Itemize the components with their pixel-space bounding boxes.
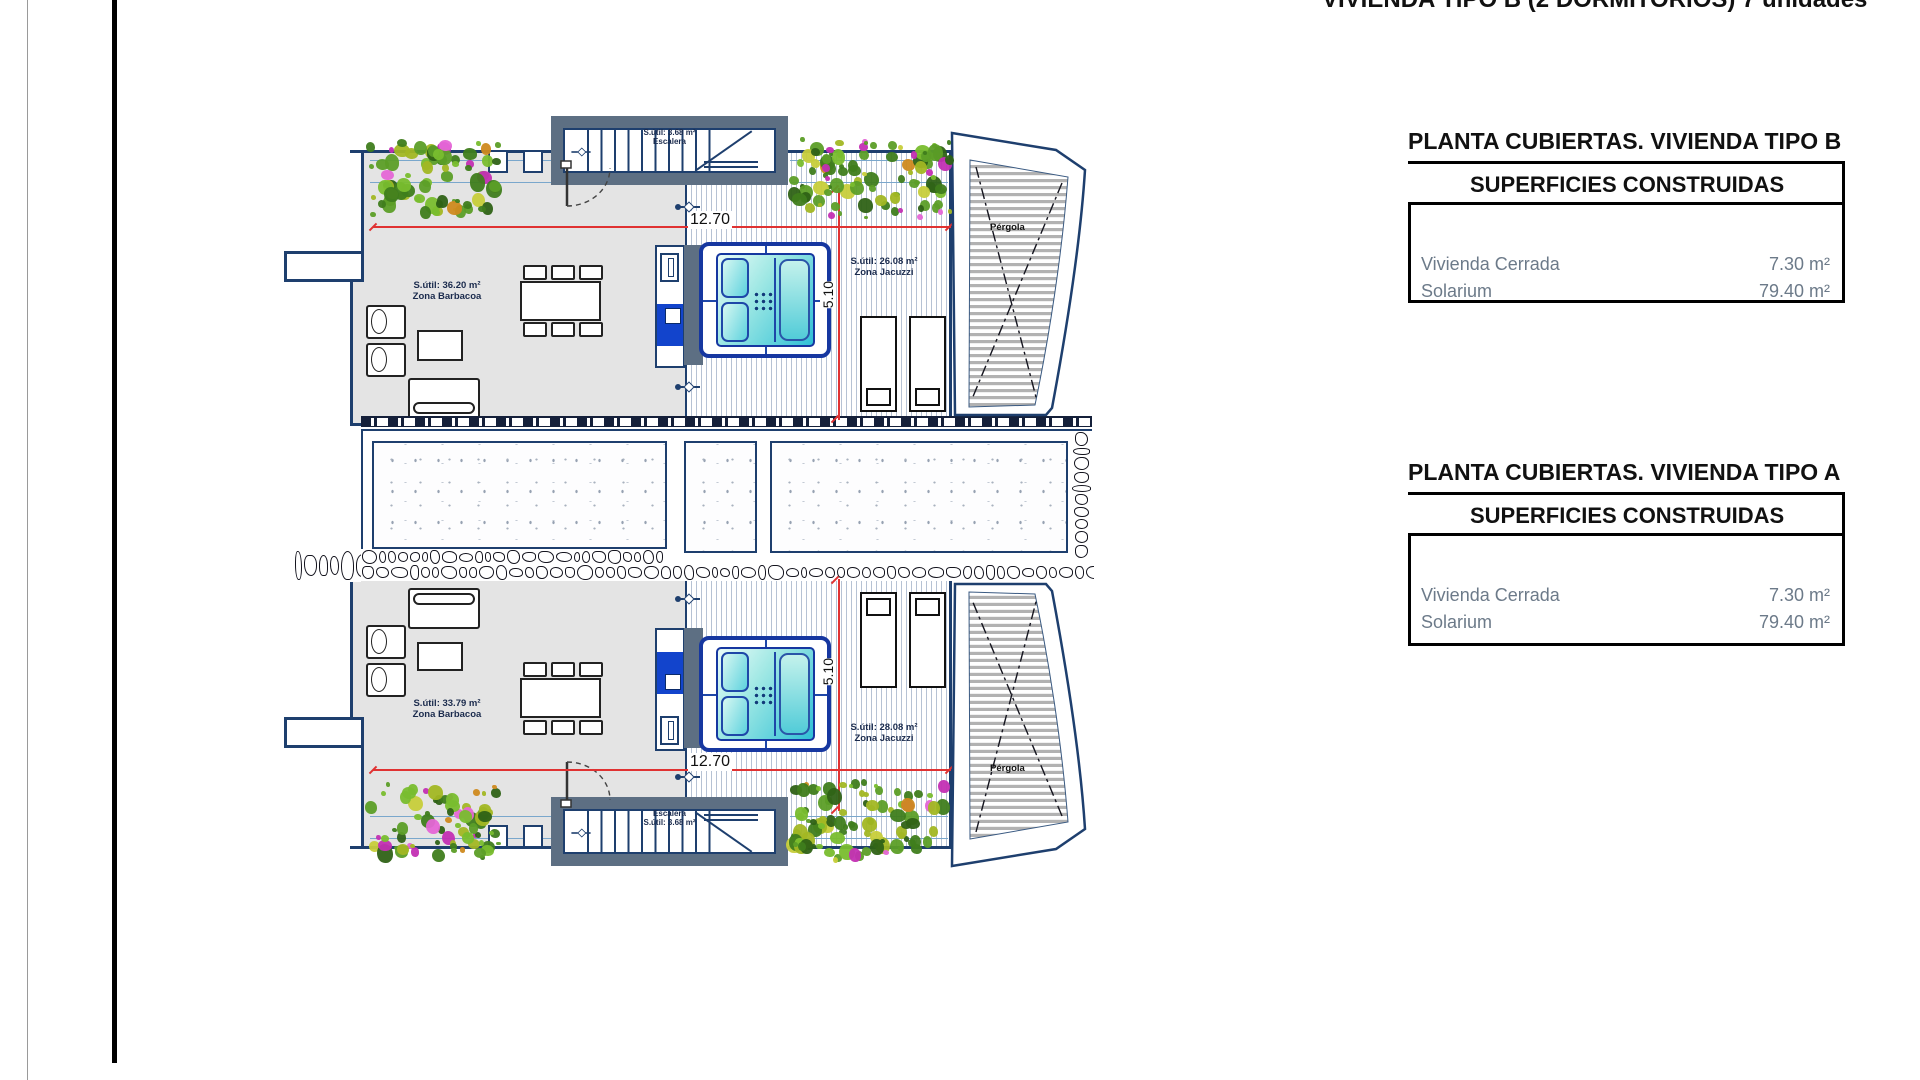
dining-table <box>520 281 601 321</box>
dining-chair <box>551 265 575 280</box>
jacuzzi-bench <box>779 653 810 735</box>
sofa-seat <box>413 593 475 605</box>
row-label: Vivienda Cerrada <box>1421 582 1560 609</box>
dining-chair <box>523 265 547 280</box>
surface-panel-tipo-a: PLANTA CUBIERTAS. VIVIENDA TIPO A SUPERF… <box>1408 459 1845 646</box>
surface-table: Vivienda Cerrada 7.30 m² Solarium 79.40 … <box>1408 536 1842 646</box>
unit-b-left-wall-lower <box>350 279 353 426</box>
jacuzzi <box>699 636 831 752</box>
unit-a-planter-line <box>790 838 948 839</box>
dining-chair <box>523 322 547 337</box>
unit-a-left-wall-lower <box>361 748 364 849</box>
row-value: 7.30 m² <box>1769 582 1830 609</box>
panel-header: SUPERFICIES CONSTRUIDAS <box>1408 164 1842 205</box>
blue-cabinet <box>657 304 683 346</box>
dining-table <box>520 678 601 718</box>
armchair <box>366 305 406 339</box>
concrete-panel <box>684 441 757 553</box>
zone-label: S.útil: 36.20 m² Zona Barbacoa <box>392 280 502 302</box>
row-value: 79.40 m² <box>1759 609 1830 636</box>
jacuzzi <box>699 242 831 358</box>
dimension-line-width <box>373 226 951 228</box>
row-value: 79.40 m² <box>1759 278 1830 305</box>
zone-label: S.útil: 28.08 m² Zona Jacuzzi <box>829 722 939 744</box>
zone-label: S.útil: 26.08 m² Zona Jacuzzi <box>829 256 939 278</box>
armchair <box>366 625 406 659</box>
sheet-frame-line <box>112 0 117 1063</box>
dining-chair <box>579 322 603 337</box>
dimension-line-height <box>838 188 840 420</box>
panel-title: PLANTA CUBIERTAS. VIVIENDA TIPO B <box>1408 128 1845 164</box>
pergola-bottom <box>938 580 1106 872</box>
surface-panel-tipo-b: PLANTA CUBIERTAS. VIVIENDA TIPO B SUPERF… <box>1408 128 1845 303</box>
stair-label: S.útil: 3.68 m² Escalera <box>551 128 788 146</box>
unit-a-wall-notch <box>284 717 364 748</box>
unit-b-wall-notch <box>284 251 364 282</box>
jacuzzi-jets-icon <box>753 291 773 311</box>
dining-chair <box>523 720 547 735</box>
dimension-marker-icon <box>676 770 700 784</box>
dimension-line-width <box>373 769 951 771</box>
stair-direction-icon <box>571 827 590 838</box>
surface-table: Vivienda Cerrada 7.30 m² Solarium 79.40 … <box>1408 205 1842 303</box>
unit-b-planter-line <box>790 160 948 161</box>
armchair <box>366 663 406 697</box>
pergola-top <box>938 123 1106 423</box>
armchair <box>366 343 406 377</box>
coffee-table <box>417 330 463 361</box>
coffee-table <box>417 642 463 671</box>
wall-pier <box>523 150 543 173</box>
sofa <box>408 588 480 629</box>
concrete-panel <box>372 441 667 549</box>
jacuzzi-jets-icon <box>753 685 773 705</box>
zone-label: S.útil: 33.79 m² Zona Barbacoa <box>392 698 502 720</box>
jacuzzi-seat <box>721 696 749 736</box>
sheet-title: VIVIENDA TIPO B (2 DORMITORIOS) 7 unidad… <box>1322 0 1867 14</box>
pergola-label: Pérgola <box>990 222 1025 233</box>
door-swing <box>552 756 616 820</box>
table-row: Solarium 79.40 m² <box>1421 278 1830 305</box>
table-row: Vivienda Cerrada 7.30 m² <box>1421 582 1830 609</box>
dining-chair <box>579 662 603 677</box>
unit-b-planter-line <box>790 182 948 183</box>
sink <box>660 253 679 282</box>
dining-chair <box>551 322 575 337</box>
door-swing <box>552 148 616 212</box>
kitchen-counter <box>655 628 685 751</box>
stone-wall <box>294 549 361 582</box>
dining-chair <box>551 720 575 735</box>
stone-band <box>361 549 667 565</box>
kitchen-counter <box>655 245 685 368</box>
pergola-label: Pérgola <box>990 763 1025 774</box>
dimension-marker-icon <box>676 200 700 214</box>
table-row: Vivienda Cerrada 7.30 m² <box>1421 251 1830 278</box>
concrete-panel <box>770 441 1068 553</box>
dimension-line-height <box>838 579 840 811</box>
stone-band <box>361 564 1094 581</box>
sheet-margin-line <box>27 0 28 1080</box>
unit-a-planter-line <box>790 816 948 817</box>
jacuzzi-water <box>716 253 815 347</box>
sofa-seat <box>413 402 475 414</box>
wall-pier <box>523 825 543 848</box>
dimension-value: 5.10 <box>820 658 836 685</box>
jacuzzi-bench <box>779 259 810 341</box>
dimension-marker-icon <box>676 592 700 606</box>
row-label: Solarium <box>1421 609 1492 636</box>
jacuzzi-seat <box>721 258 749 298</box>
armchair-cushion <box>371 667 387 692</box>
stair-rail <box>704 161 758 168</box>
wall-pier <box>488 825 508 848</box>
armchair-cushion <box>371 629 387 654</box>
table-row: Solarium 79.40 m² <box>1421 609 1830 636</box>
panel-title: PLANTA CUBIERTAS. VIVIENDA TIPO A <box>1408 459 1845 495</box>
sofa <box>408 378 480 419</box>
dimension-value: 5.10 <box>820 281 836 308</box>
blue-cabinet <box>657 652 683 694</box>
panel-header: SUPERFICIES CONSTRUIDAS <box>1408 495 1842 536</box>
dining-chair <box>551 662 575 677</box>
row-label: Vivienda Cerrada <box>1421 251 1560 278</box>
sink <box>660 716 679 745</box>
jacuzzi-water <box>716 647 815 741</box>
unit-a-left-wall-upper <box>350 578 353 717</box>
armchair-cushion <box>371 309 387 334</box>
stone-column <box>1071 431 1092 564</box>
wall-pier <box>488 150 508 173</box>
dining-chair <box>579 720 603 735</box>
armchair-cushion <box>371 347 387 372</box>
jacuzzi-seat <box>721 302 749 342</box>
dimension-marker-icon <box>676 380 700 394</box>
jacuzzi-seat <box>721 652 749 692</box>
dimension-value: 12.70 <box>688 753 732 771</box>
dining-chair <box>523 662 547 677</box>
row-label: Solarium <box>1421 278 1492 305</box>
unit-b-left-wall-upper <box>361 150 364 254</box>
drawing-sheet: VIVIENDA TIPO B (2 DORMITORIOS) 7 unidad… <box>0 0 1920 1080</box>
sun-lounger <box>860 592 897 688</box>
sun-lounger <box>860 316 897 412</box>
dining-chair <box>579 265 603 280</box>
row-value: 7.30 m² <box>1769 251 1830 278</box>
